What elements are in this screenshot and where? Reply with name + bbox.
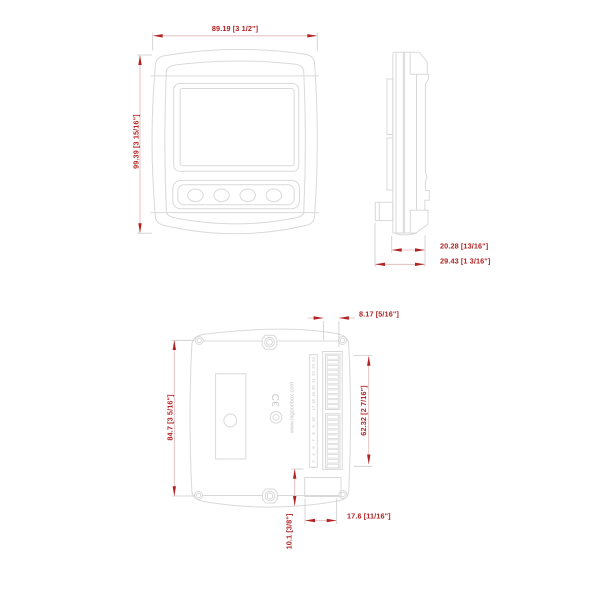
svg-text:20: 20 xyxy=(311,385,316,390)
svg-text:62.32 [2 7/16"]: 62.32 [2 7/16"] xyxy=(359,385,368,436)
svg-text:22: 22 xyxy=(311,371,316,376)
svg-text:8: 8 xyxy=(311,432,316,435)
svg-text:9: 9 xyxy=(311,425,316,428)
svg-text:4: 4 xyxy=(311,453,316,456)
svg-text:84.7 [3 5/16"]: 84.7 [3 5/16"] xyxy=(166,394,175,441)
svg-text:17.6 [11/16"]: 17.6 [11/16"] xyxy=(347,512,391,521)
svg-text:7: 7 xyxy=(311,439,316,442)
svg-text:21: 21 xyxy=(311,378,316,383)
svg-text:18: 18 xyxy=(311,399,316,404)
svg-text:23: 23 xyxy=(311,364,316,369)
svg-text:1: 1 xyxy=(311,466,316,469)
svg-text:C€: C€ xyxy=(269,394,280,407)
svg-text:24: 24 xyxy=(311,357,316,362)
svg-text:10: 10 xyxy=(311,417,316,422)
svg-text:20.28 [13/16"]: 20.28 [13/16"] xyxy=(440,241,489,250)
svg-text:6: 6 xyxy=(311,446,316,449)
svg-text:2: 2 xyxy=(311,460,316,463)
svg-text:29.43 [1 3/16"]: 29.43 [1 3/16"] xyxy=(440,256,491,265)
svg-text:www.lagoonbox.com: www.lagoonbox.com xyxy=(289,382,296,435)
svg-text:99.39 [3 15/16"]: 99.39 [3 15/16"] xyxy=(131,114,140,169)
svg-text:17: 17 xyxy=(311,405,316,410)
svg-text:10.1 [3/8"]: 10.1 [3/8"] xyxy=(285,513,294,549)
svg-text:8.17 [5/16"]: 8.17 [5/16"] xyxy=(359,310,399,319)
svg-text:19: 19 xyxy=(311,392,316,397)
svg-text:89.19 [3 1/2"]: 89.19 [3 1/2"] xyxy=(212,24,259,33)
